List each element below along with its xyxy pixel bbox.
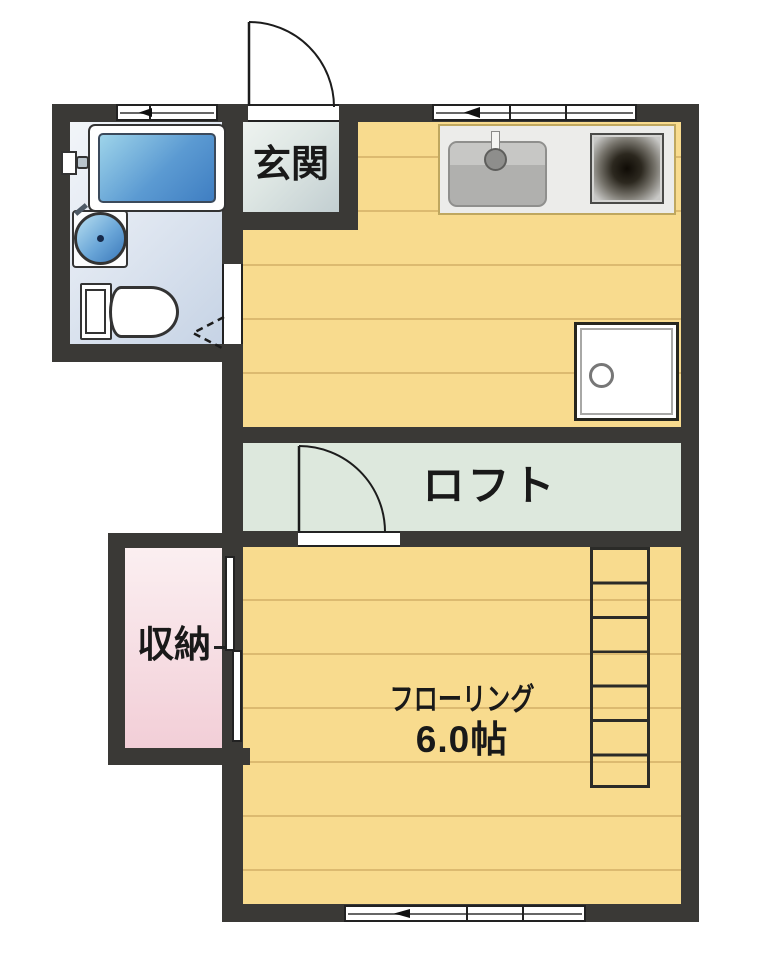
floor-plan: 玄関 ロフト 収納 フローリング 6.0帖 [0,0,775,965]
loft-door-arc [299,446,385,532]
window-tick [467,907,523,920]
window-arrow-icon [139,108,152,117]
bathroom-folding-door-icon [193,317,224,349]
window-tick [510,106,566,119]
loft-label-text: ロフト [422,462,557,509]
closet-label-text: 収納 [137,624,211,665]
entrance-label: 玄関 [243,146,339,186]
main-room-label: フローリング [243,684,681,717]
window-arrow-icon [394,909,410,918]
window-arrow-icon [464,107,480,118]
entrance-door-arc [249,22,334,107]
flooring-label-text: フローリング [389,684,534,717]
entrance-label-text: 玄関 [253,144,329,186]
main-room-size-label: 6.0帖 [243,721,681,760]
loft-label: ロフト [380,464,600,508]
closet-label: 収納 [118,626,230,665]
flooring-size-text: 6.0帖 [416,719,508,760]
